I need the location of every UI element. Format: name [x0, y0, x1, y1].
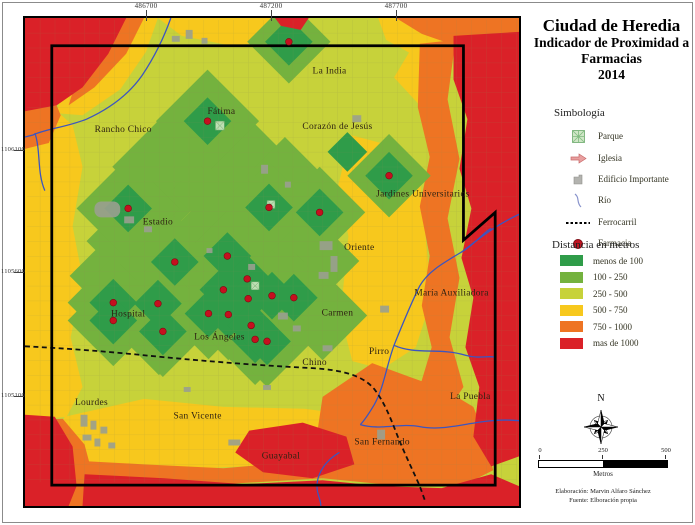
coordinate-tick — [396, 10, 397, 21]
coordinate-tick — [271, 10, 272, 21]
farmacia-dot — [205, 310, 212, 317]
place-label: Oriente — [344, 243, 374, 253]
coordinate-tick — [14, 396, 24, 397]
farmacia-dot — [204, 118, 211, 125]
farmacia-dot — [160, 328, 167, 335]
farmacia-dot — [155, 300, 162, 307]
place-label: La Puebla — [450, 392, 491, 402]
distance-class-row: 500 - 750 — [560, 305, 643, 316]
distance-heading: Distancia en metros — [552, 239, 639, 251]
symbology-heading: Simbología — [554, 107, 605, 119]
farmacia-dot — [225, 311, 232, 318]
scale-tick-label: 500 — [661, 447, 671, 454]
street-grid — [27, 20, 517, 482]
place-label: Estadio — [143, 217, 173, 227]
place-label: Rancho Chico — [95, 125, 152, 135]
farmacia-dot — [224, 253, 231, 260]
distance-class-row: mas de 1000 — [560, 338, 643, 349]
farmacia-dot — [285, 38, 292, 45]
railroad-icon — [566, 215, 590, 230]
farmacia-dot — [125, 205, 132, 212]
title-line-3: Farmacias — [528, 51, 695, 67]
map-title: Ciudad de Heredia Indicador de Proximida… — [528, 16, 695, 83]
distance-class-row: 100 - 250 — [560, 272, 643, 283]
north-label: N — [528, 393, 674, 404]
coordinate-tick — [14, 272, 24, 273]
distance-swatch — [560, 321, 583, 332]
place-label: Los Ángeles — [194, 330, 245, 342]
farmacia-dot — [386, 172, 393, 179]
farmacia-dot — [264, 338, 271, 345]
distance-class-row: 750 - 1000 — [560, 321, 643, 332]
farmacia-dot — [316, 209, 323, 216]
farmacia-dot — [248, 322, 255, 329]
legend-label: Río — [598, 195, 611, 205]
farmacia-dot — [220, 286, 227, 293]
coordinate-label-x: 487700 — [385, 2, 408, 10]
farmacia-dot — [290, 294, 297, 301]
place-label: Lourdes — [75, 398, 108, 408]
title-line-1: Ciudad de Heredia — [528, 16, 695, 35]
farmacia-dot — [110, 299, 117, 306]
map-canvas: La IndiaFátimaRancho ChicoCorazón de Jes… — [23, 16, 521, 508]
farmacia-dot — [245, 295, 252, 302]
coordinate-tick — [146, 10, 147, 21]
scale-unit: Metros — [538, 470, 668, 478]
place-label: Carmen — [322, 309, 354, 319]
map-layout-page: La IndiaFátimaRancho ChicoCorazón de Jes… — [0, 0, 695, 525]
legend-label: Parque — [598, 131, 623, 141]
place-label: Jardines Universitarios — [376, 190, 469, 200]
distance-label: 500 - 750 — [593, 305, 628, 315]
place-label: Corazón de Jesús — [302, 122, 372, 132]
legend-label: Iglesia — [598, 153, 622, 163]
title-line-2: Indicador de Proximidad a — [528, 35, 695, 51]
distance-label: 250 - 500 — [593, 289, 628, 299]
place-label: San Fernando — [354, 438, 410, 448]
place-label: María Auxiliadora — [414, 289, 489, 299]
place-label: Pirro — [369, 347, 389, 357]
heredia-proximity-map: La IndiaFátimaRancho ChicoCorazón de Jes… — [25, 18, 519, 506]
farmacia-dot — [252, 336, 259, 343]
distance-swatch — [560, 288, 583, 299]
river-icon — [566, 193, 590, 208]
scale-tick-label: 250 — [598, 447, 608, 454]
credit-source: Fuente: Elboración propia — [528, 496, 678, 505]
place-label: Hospital — [111, 310, 145, 320]
credit-author: Elaboración: Marvin Alfaro Sánchez — [528, 487, 678, 496]
distance-class-row: 250 - 500 — [560, 288, 643, 299]
coordinate-label-x: 486700 — [135, 2, 158, 10]
scale-bar: 0 250 500 Metros — [538, 447, 668, 479]
place-label: Fátima — [207, 107, 235, 117]
place-label: Guayabal — [262, 451, 301, 461]
farmacia-dot — [244, 275, 251, 282]
park-icon — [566, 129, 590, 144]
farmacia-dot — [266, 204, 273, 211]
scale-tick-label: 0 — [538, 447, 541, 454]
coordinate-tick — [14, 150, 24, 151]
distance-class-row: menos de 100 — [560, 255, 643, 266]
scale-bar-graphic — [538, 460, 668, 468]
place-label: San Vicente — [173, 412, 221, 422]
distance-label: 100 - 250 — [593, 272, 628, 282]
church-icon — [566, 151, 590, 166]
distance-label: 750 - 1000 — [593, 322, 632, 332]
legend-label: Ferrocarril — [598, 217, 636, 227]
distance-swatch — [560, 338, 583, 349]
building-icon — [566, 172, 590, 187]
compass-rose-icon — [578, 404, 624, 450]
place-label: Chino — [302, 358, 327, 368]
distance-swatch — [560, 255, 583, 266]
place-label: La India — [313, 67, 348, 77]
distance-label: menos de 100 — [593, 256, 643, 266]
farmacia-dot — [269, 292, 276, 299]
distance-label: mas de 1000 — [593, 338, 639, 348]
distance-swatch — [560, 305, 583, 316]
legend-label: Edificio Importante — [598, 174, 669, 184]
distance-legend: menos de 100100 - 250250 - 500500 - 7507… — [560, 255, 643, 349]
distance-swatch — [560, 272, 583, 283]
coordinate-label-x: 487200 — [260, 2, 283, 10]
farmacia-dot — [171, 259, 178, 266]
credits: Elaboración: Marvin Alfaro Sánchez Fuent… — [528, 487, 678, 505]
title-line-4: 2014 — [528, 67, 695, 83]
legend-panel: Ciudad de Heredia Indicador de Proximida… — [528, 0, 695, 525]
